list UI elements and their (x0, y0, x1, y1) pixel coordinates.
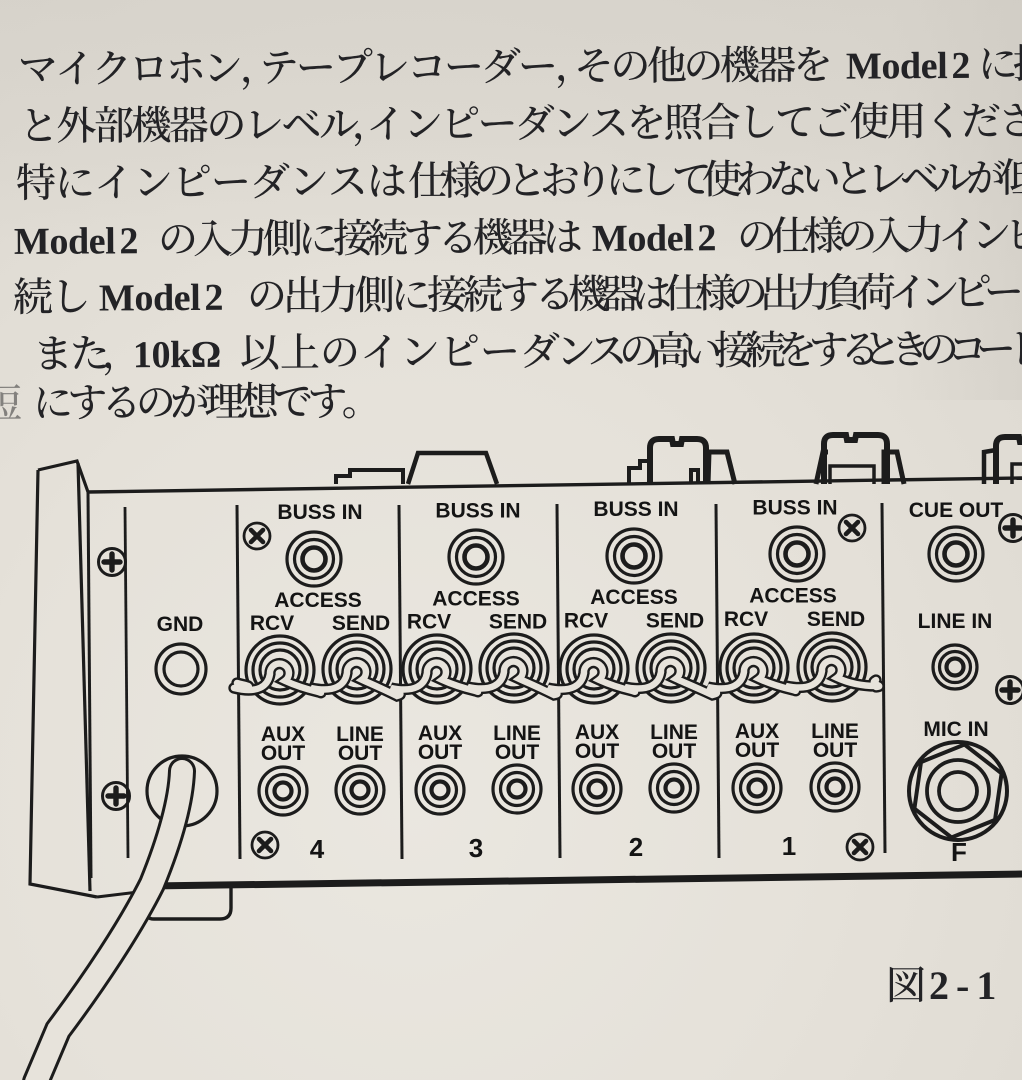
svg-text:Model 2: Model 2 (846, 45, 970, 88)
svg-text:3: 3 (469, 833, 483, 863)
svg-text:4: 4 (310, 834, 325, 864)
svg-text:Model 2: Model 2 (99, 277, 223, 320)
svg-text:SEND: SEND (332, 612, 390, 635)
svg-text:GND: GND (157, 613, 204, 636)
svg-text:RCV: RCV (407, 611, 451, 634)
svg-text:BUSS IN: BUSS IN (435, 500, 520, 523)
svg-text:Model 2: Model 2 (592, 217, 716, 260)
svg-text:SEND: SEND (646, 609, 704, 632)
svg-text:1: 1 (782, 831, 796, 861)
svg-text:OUT: OUT (495, 741, 540, 764)
svg-text:2: 2 (629, 832, 643, 862)
svg-text:LINE IN: LINE IN (918, 610, 993, 633)
svg-text:SEND: SEND (807, 608, 865, 631)
svg-text:OUT: OUT (735, 739, 780, 762)
svg-text:OUT: OUT (338, 742, 383, 765)
svg-text:RCV: RCV (564, 609, 608, 632)
svg-text:OUT: OUT (652, 740, 697, 763)
svg-text:BUSS IN: BUSS IN (593, 498, 678, 521)
svg-text:2-1: 2-1 (929, 963, 1003, 1008)
svg-text:ACCESS: ACCESS (432, 588, 520, 611)
svg-text:ACCESS: ACCESS (590, 586, 678, 609)
svg-text:ACCESS: ACCESS (749, 585, 837, 608)
svg-text:OUT: OUT (418, 741, 463, 764)
svg-text:BUSS IN: BUSS IN (277, 501, 362, 524)
svg-text:RCV: RCV (724, 608, 768, 631)
svg-text:SEND: SEND (489, 611, 547, 634)
svg-text:OUT: OUT (261, 742, 306, 765)
svg-text:OUT: OUT (813, 739, 858, 762)
svg-text:OUT: OUT (575, 740, 620, 763)
svg-text:ACCESS: ACCESS (274, 589, 362, 612)
svg-text:CUE OUT: CUE OUT (909, 499, 1004, 522)
svg-text:F: F (951, 837, 967, 867)
svg-text:10kΩ: 10kΩ (133, 334, 221, 376)
svg-text:Model 2: Model 2 (14, 220, 138, 263)
svg-text:RCV: RCV (250, 612, 294, 635)
svg-text:BUSS IN: BUSS IN (752, 497, 837, 520)
svg-text:MIC IN: MIC IN (923, 718, 988, 741)
